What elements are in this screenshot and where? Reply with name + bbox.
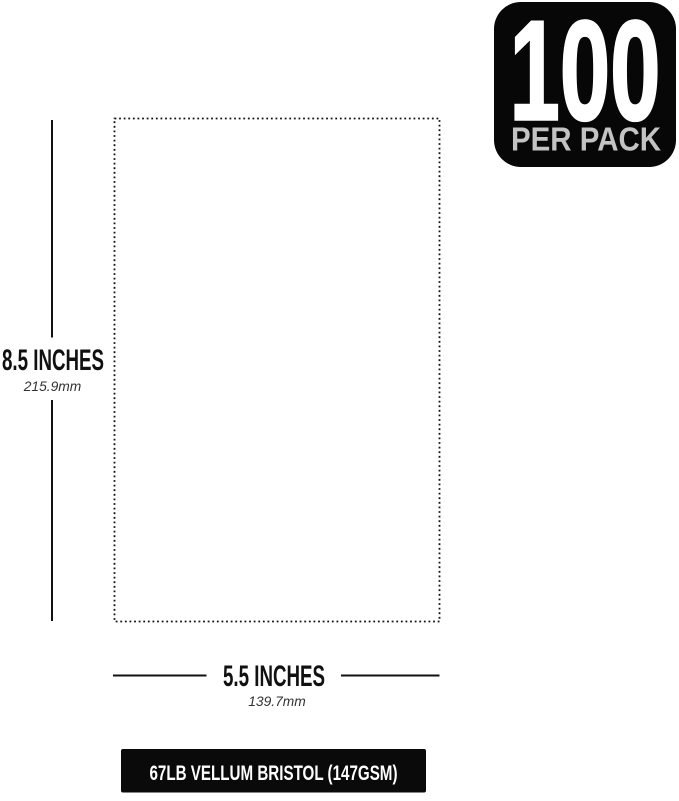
svg-text:5.5 INCHES: 5.5 INCHES [223,660,325,693]
svg-text:139.7mm: 139.7mm [248,694,306,709]
svg-text:8.5 INCHES: 8.5 INCHES [2,344,104,377]
svg-text:67LB VELLUM BRISTOL (147GSM): 67LB VELLUM BRISTOL (147GSM) [150,761,398,785]
svg-text:215.9mm: 215.9mm [23,379,82,394]
svg-text:PER PACK: PER PACK [511,121,661,158]
